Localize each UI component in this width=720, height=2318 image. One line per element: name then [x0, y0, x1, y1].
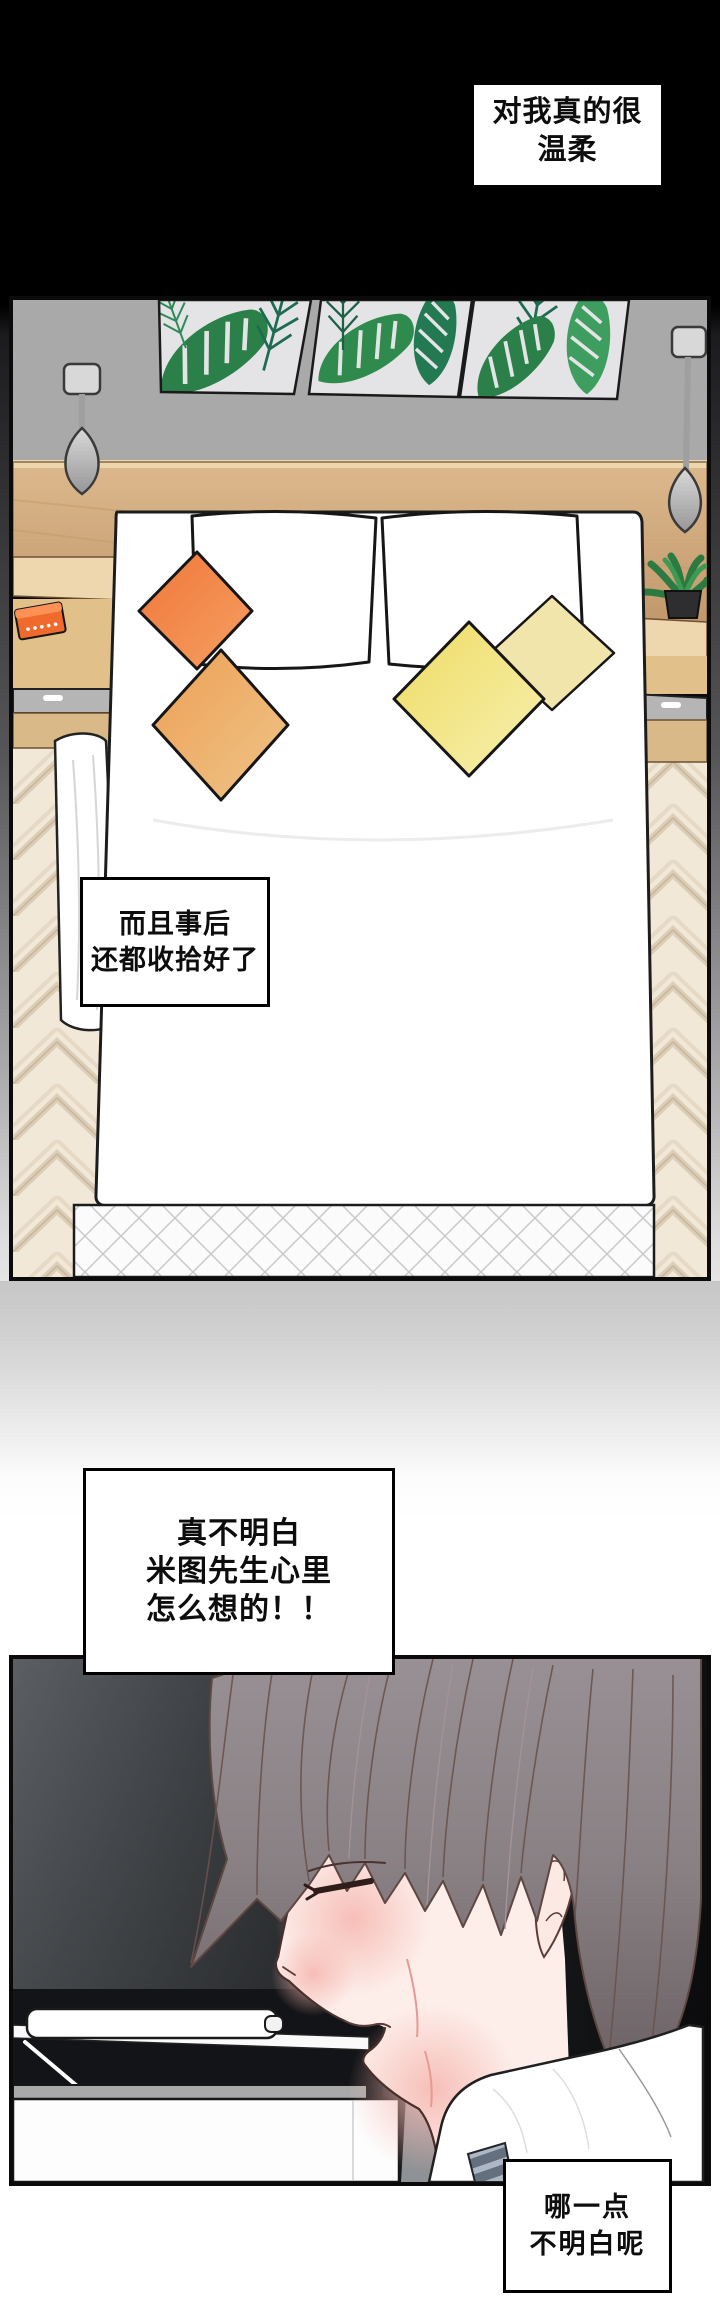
bubble-line: 米图先生心里	[146, 1553, 332, 1591]
speech-bubble-gentle: 对我真的很 温柔	[472, 83, 663, 187]
bubble-line: 温柔	[537, 131, 597, 169]
bedroom-scene	[13, 300, 707, 1277]
speech-bubble-reply: 哪一点 不明白呢	[503, 2159, 672, 2293]
comic-page: 对我真的很 温柔 而且事后 还都收拾好了 真不明白 米图先生心里 怎么想的！！ …	[0, 0, 720, 2318]
leaf-wall-art	[145, 300, 629, 405]
bubble-line: 怎么想的！！	[146, 1591, 332, 1629]
bubble-line: 真不明白	[177, 1515, 301, 1553]
bubble-line: 而且事后	[119, 906, 231, 942]
nose-blush	[271, 1932, 355, 2016]
bubble-line: 哪一点	[544, 2189, 631, 2226]
panel-bedroom	[9, 296, 711, 1281]
bubble-line: 不明白呢	[530, 2226, 646, 2263]
quilted-mattress-edge	[74, 1205, 654, 1277]
laptop-hinge	[265, 2016, 283, 2032]
drawer-front	[13, 2099, 399, 2182]
panel-profile	[9, 1655, 711, 2186]
desk-front-edge	[13, 2085, 367, 2099]
speech-bubble-tidy: 而且事后 还都收拾好了	[80, 877, 270, 1007]
nightstand-left	[13, 557, 122, 748]
below-panel-fade	[0, 1281, 720, 1476]
profile-scene	[13, 1659, 707, 2182]
bubble-line: 对我真的很	[492, 93, 642, 131]
speech-bubble-confused: 真不明白 米图先生心里 怎么想的！！	[83, 1468, 395, 1675]
bubble-line: 还都收拾好了	[91, 942, 259, 978]
closed-laptop	[27, 2009, 277, 2038]
